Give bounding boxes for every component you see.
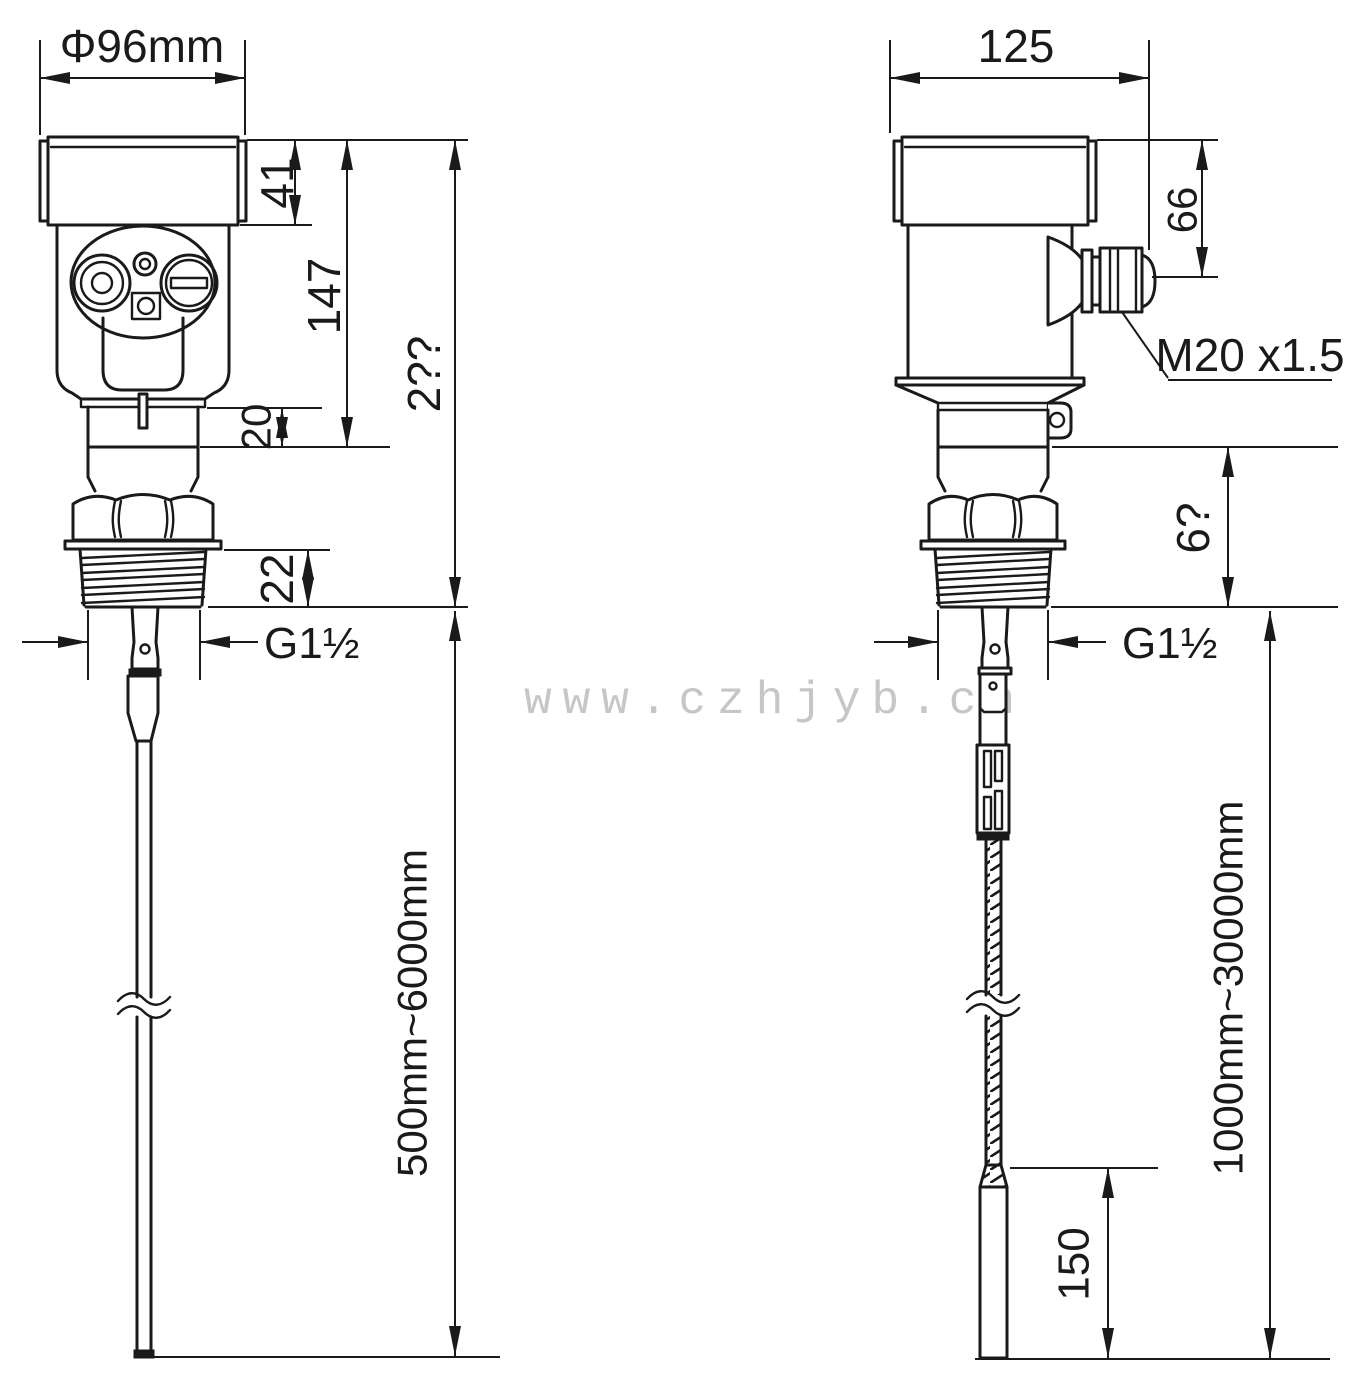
dim-6x-label: 6? — [1167, 502, 1219, 553]
break-symbol — [118, 993, 170, 1018]
cable-gland — [1048, 237, 1155, 325]
hex-nut-side — [929, 495, 1057, 541]
dim-147-label: 147 — [298, 258, 350, 335]
dim-41-label: 41 — [251, 157, 303, 208]
hex-nut — [73, 495, 213, 541]
probe-range-right-label: 1000mm~30000mm — [1205, 801, 1252, 1176]
gland-dome-cap — [1142, 255, 1155, 307]
left-dimensions: Φ96mm 41 147 2?? 20 22 G1½ 500mm~6000mm — [22, 20, 500, 1357]
probe-rod — [118, 607, 170, 1358]
counterweight — [980, 1165, 1007, 1358]
mounting-flange-side — [921, 541, 1065, 549]
watermark-text: www.czhjyb.cn — [524, 675, 1026, 727]
left-view: Φ96mm 41 147 2?? 20 22 G1½ 500mm~6000mm — [22, 20, 500, 1358]
housing-cap-side — [894, 137, 1096, 225]
process-thread — [80, 549, 206, 607]
dim-150-label: 150 — [1050, 1227, 1099, 1300]
housing-cap — [40, 137, 246, 225]
technical-drawing-page: www.czhjyb.cn — [0, 0, 1346, 1386]
dim-total-label: 2?? — [398, 336, 450, 413]
cable-clamp — [977, 745, 1009, 833]
dim-66-label: 66 — [1159, 187, 1206, 234]
vent-pin — [139, 394, 147, 428]
level-transmitter-dimension-drawing: www.czhjyb.cn — [0, 0, 1346, 1386]
thread-g112-right-label: G1½ — [1122, 619, 1217, 668]
dim-125-label: 125 — [978, 20, 1055, 72]
dim-20-label: 20 — [233, 404, 280, 451]
dim-phi96-label: Φ96mm — [60, 20, 225, 72]
process-thread-side — [935, 549, 1051, 607]
dim-22-label: 22 — [251, 553, 303, 604]
gland-thread-label: M20 x1.5 — [1155, 329, 1344, 381]
left-knob-icon — [74, 255, 130, 311]
mounting-lug — [1048, 403, 1071, 438]
mounting-flange — [65, 541, 221, 549]
probe-range-left-label: 500mm~6000mm — [389, 849, 436, 1177]
right-knob-icon — [161, 255, 217, 311]
thread-g112-left-label: G1½ — [264, 619, 359, 668]
indicator-dot-icon — [134, 253, 156, 275]
neck-side — [938, 410, 1048, 491]
